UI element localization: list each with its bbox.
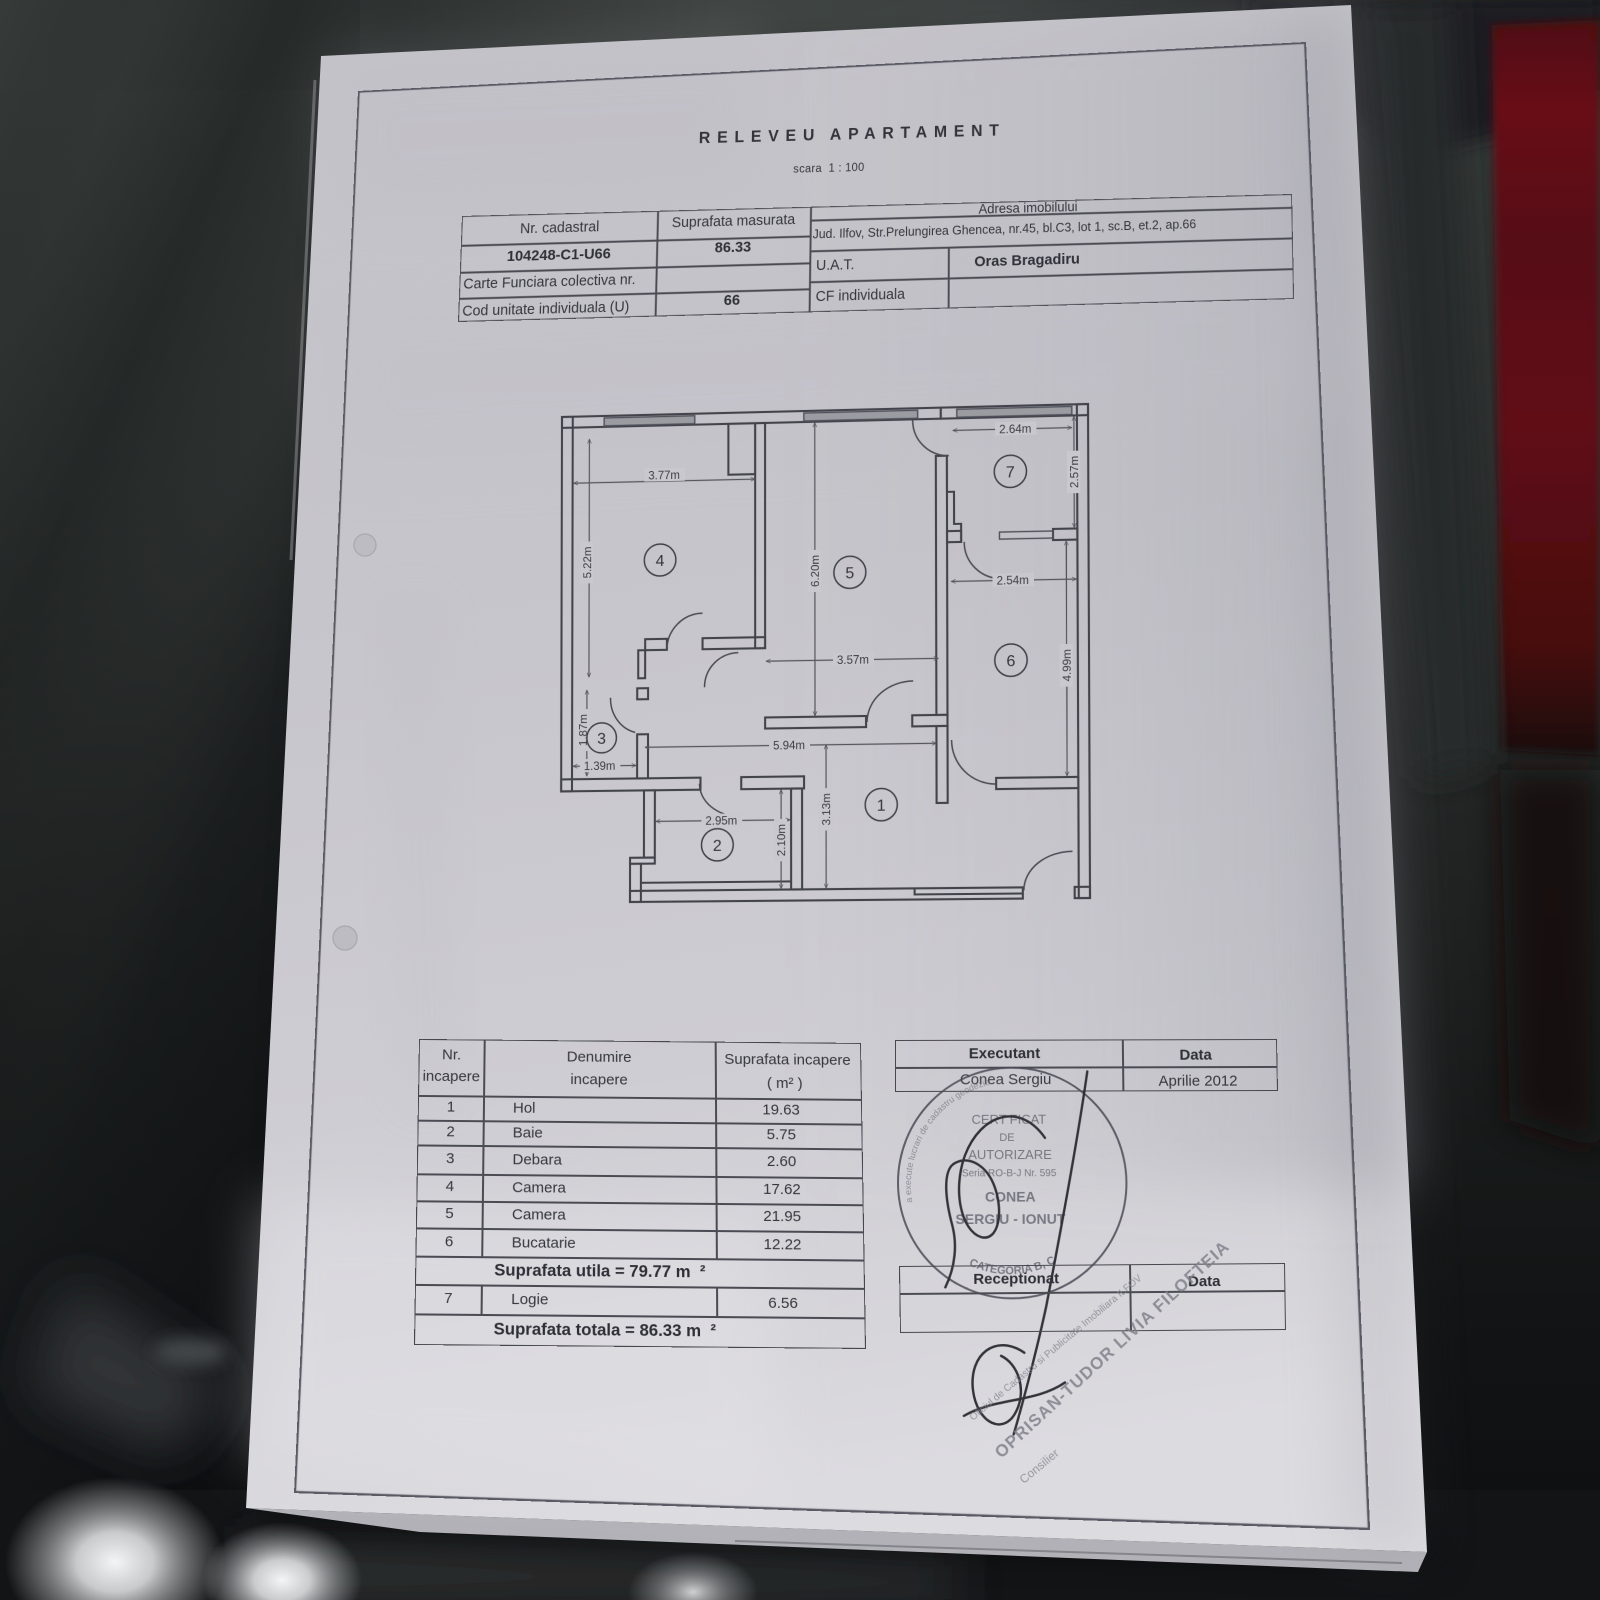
svg-text:2.95m: 2.95m bbox=[705, 815, 737, 828]
svg-text:1.87m: 1.87m bbox=[578, 714, 590, 746]
svg-text:1.39m: 1.39m bbox=[584, 760, 615, 773]
svg-text:3.77m: 3.77m bbox=[648, 470, 680, 483]
svg-text:CERTFICAT: CERTFICAT bbox=[972, 1112, 1047, 1127]
svg-text:5.94m: 5.94m bbox=[773, 740, 805, 753]
svg-text:2.64m: 2.64m bbox=[999, 423, 1031, 436]
svg-text:3.57m: 3.57m bbox=[837, 654, 869, 667]
svg-text:CONEA: CONEA bbox=[985, 1189, 1036, 1205]
svg-text:2.54m: 2.54m bbox=[997, 575, 1029, 588]
svg-text:4: 4 bbox=[656, 553, 665, 571]
svg-text:1: 1 bbox=[877, 797, 886, 815]
svg-text:4.99m: 4.99m bbox=[1061, 649, 1074, 682]
svg-text:DE: DE bbox=[999, 1132, 1014, 1144]
svg-text:2.57m: 2.57m bbox=[1069, 456, 1082, 489]
svg-text:SERGIU - IONUT: SERGIU - IONUT bbox=[955, 1211, 1066, 1227]
svg-text:2: 2 bbox=[713, 837, 722, 855]
svg-text:2.10m: 2.10m bbox=[776, 824, 788, 856]
svg-text:3.13m: 3.13m bbox=[821, 793, 833, 825]
svg-text:6: 6 bbox=[1006, 653, 1015, 671]
svg-text:7: 7 bbox=[1006, 464, 1015, 482]
svg-text:3: 3 bbox=[597, 730, 606, 748]
svg-text:5: 5 bbox=[845, 565, 854, 583]
svg-text:6.20m: 6.20m bbox=[810, 555, 822, 587]
svg-text:5.22m: 5.22m bbox=[582, 546, 594, 578]
svg-text:AUTORIZARE: AUTORIZARE bbox=[968, 1148, 1052, 1163]
svg-text:Seria RO-B-J Nr. 595: Seria RO-B-J Nr. 595 bbox=[962, 1168, 1056, 1180]
